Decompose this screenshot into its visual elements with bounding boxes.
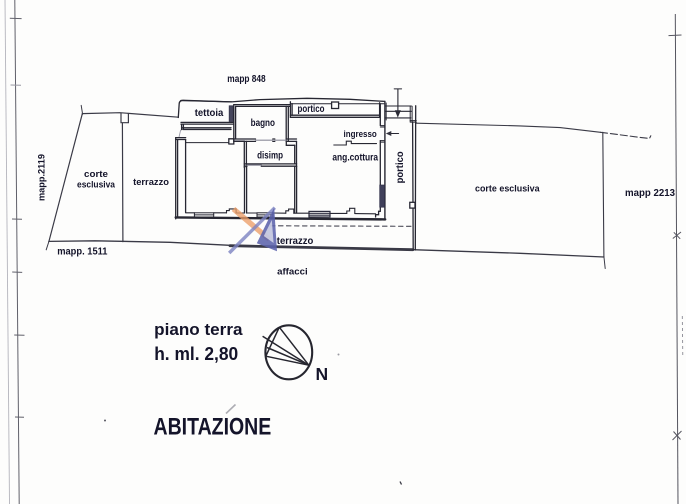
svg-text:mapp. 1511: mapp. 1511 — [57, 247, 108, 258]
svg-text:esclusiva: esclusiva — [77, 180, 116, 191]
svg-text:terrazzo: terrazzo — [277, 236, 314, 247]
svg-text:h. ml. 2,80: h. ml. 2,80 — [154, 343, 238, 364]
svg-text:piano terra: piano terra — [154, 320, 243, 339]
svg-text:ABITAZIONE: ABITAZIONE — [154, 414, 272, 441]
svg-text:portico: portico — [298, 104, 325, 115]
svg-text:N: N — [316, 364, 329, 384]
svg-text:corte: corte — [84, 169, 108, 180]
svg-text:bagno: bagno — [251, 117, 275, 129]
svg-text:mapp 2213: mapp 2213 — [625, 187, 675, 199]
svg-text:ang.cottura: ang.cottura — [332, 152, 378, 163]
svg-text:terrazzo: terrazzo — [133, 177, 169, 188]
svg-text:corte esclusiva: corte esclusiva — [475, 184, 540, 195]
svg-text:portico: portico — [395, 151, 406, 183]
svg-text:disimp: disimp — [257, 150, 283, 162]
svg-text:mapp.2119: mapp.2119 — [37, 154, 47, 201]
svg-text:mapp 848: mapp 848 — [227, 74, 266, 85]
svg-text:tettoia: tettoia — [195, 108, 224, 119]
svg-text:ingresso: ingresso — [344, 129, 377, 140]
svg-text:affacci: affacci — [277, 266, 308, 276]
